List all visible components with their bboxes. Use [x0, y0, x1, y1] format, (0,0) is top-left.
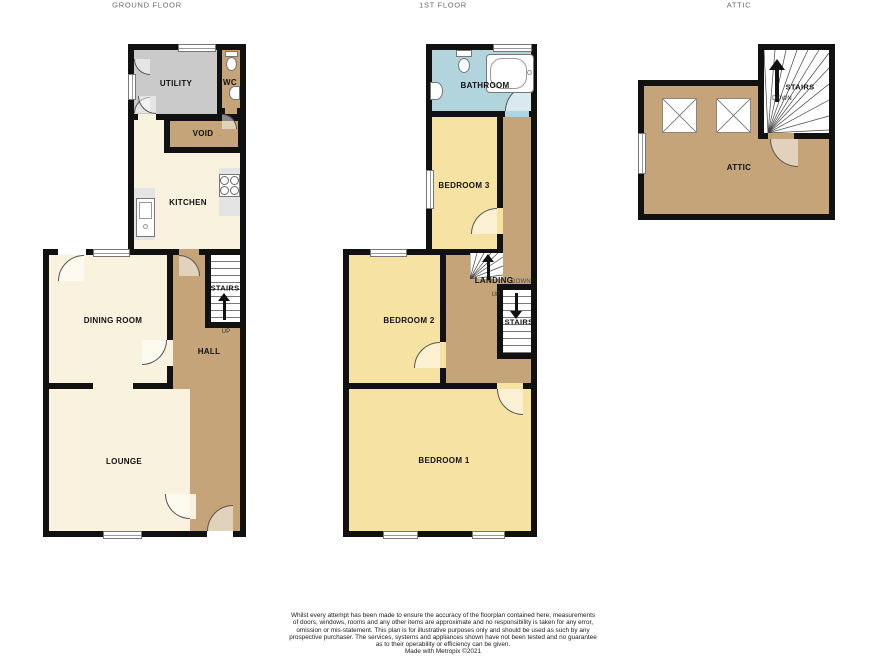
door-opening — [179, 249, 199, 255]
up-label: UP — [222, 329, 231, 335]
attic-label: ATTIC — [727, 164, 751, 172]
door-opening — [138, 114, 156, 120]
skylight-icon — [662, 98, 697, 133]
window — [472, 531, 505, 539]
disclaimer-line: of doors, windows, rooms and any other i… — [289, 619, 597, 626]
wc-label: WC — [223, 79, 237, 87]
window — [103, 531, 142, 539]
skylight-icon — [716, 98, 751, 133]
door-opening — [225, 108, 237, 114]
open-doorway — [93, 383, 133, 389]
window — [93, 249, 130, 257]
stairs-label: STAIRS — [505, 318, 534, 326]
disclaimer-made-with: Made with Metropix ©2021 — [289, 648, 597, 655]
door-opening — [190, 494, 196, 519]
lounge-label: LOUNGE — [106, 458, 142, 466]
window — [178, 44, 216, 52]
up-label: UP — [492, 292, 501, 298]
sink-icon — [430, 82, 443, 100]
disclaimer-line: prospective purchaser. The services, sys… — [289, 634, 597, 641]
window — [383, 531, 418, 539]
hob-icon — [219, 174, 240, 197]
down-label: DOWN — [511, 279, 531, 285]
bedroom1-label: BEDROOM 1 — [418, 457, 469, 465]
stairs-label: STAIRS — [786, 83, 815, 91]
window — [493, 44, 532, 52]
landing-strip — [503, 117, 531, 255]
kitchen-label: KITCHEN — [169, 199, 207, 207]
void-label: VOID — [193, 130, 214, 138]
window — [638, 133, 646, 174]
dining-room-label: DINING ROOM — [84, 317, 142, 325]
front-door-opening — [207, 531, 233, 537]
bedroom2-label: BEDROOM 2 — [383, 317, 434, 325]
door-opening — [505, 111, 529, 117]
window — [128, 74, 136, 100]
stairs-label: STAIRS — [211, 284, 240, 292]
window — [426, 170, 434, 209]
floor-title-first: 1ST FLOOR — [419, 1, 467, 9]
utility-label: UTILITY — [160, 80, 192, 88]
floor-title-attic: ATTIC — [727, 1, 752, 9]
door-opening — [497, 208, 503, 234]
disclaimer-line: Whilst every attempt has been made to en… — [289, 612, 597, 619]
hall-label: HALL — [198, 348, 221, 356]
floorplan-canvas: GROUND FLOOR 1ST FLOOR ATTIC — [0, 0, 886, 658]
door-opening — [440, 342, 446, 368]
floor-title-ground: GROUND FLOOR — [112, 1, 182, 9]
sink-icon — [229, 86, 240, 100]
bathroom-label: BATHROOM — [461, 82, 510, 90]
disclaimer-line: omission or mis-statement. This plan is … — [289, 627, 597, 634]
landing-label: LANDING — [475, 277, 514, 285]
bedroom3-label: BEDROOM 3 — [438, 182, 489, 190]
window — [370, 249, 407, 257]
down-label: DOWN — [772, 96, 792, 102]
door-opening — [167, 340, 173, 366]
disclaimer-text: Whilst every attempt has been made to en… — [289, 612, 597, 656]
